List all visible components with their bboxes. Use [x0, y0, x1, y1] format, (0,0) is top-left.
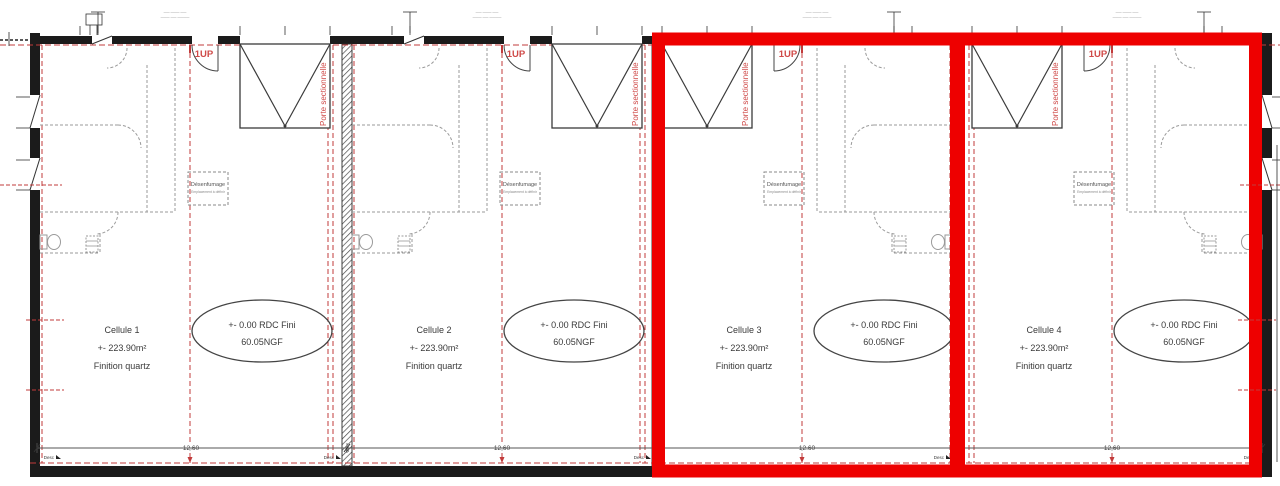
- cell-finish-label: Finition quartz: [716, 361, 773, 371]
- smoke-vent-sublabel: Emplacement à définir: [503, 190, 538, 194]
- illegible-note: —— ——— ——: [164, 10, 187, 14]
- illegible-note: ——— —— ————: [1113, 15, 1142, 19]
- illegible-note: ——— —— ————: [473, 15, 502, 19]
- smoke-vent-sublabel: Emplacement à définir: [1077, 190, 1112, 194]
- cell-name-label: Cellule 3: [726, 325, 761, 335]
- level-label: +- 0.00 RDC Fini: [228, 320, 295, 330]
- sectional-door: [662, 44, 752, 128]
- cell-name-label: Cellule 1: [104, 325, 139, 335]
- level-ngf-label: 60.05NGF: [553, 337, 595, 347]
- cell-area-label: +- 223.90m²: [720, 343, 769, 353]
- level-ngf-label: 60.05NGF: [241, 337, 283, 347]
- stair-label: 1UP: [1089, 49, 1108, 60]
- sectional-door-label: Porte sectionnelle: [319, 62, 328, 126]
- sectional-door: [240, 44, 330, 128]
- sectional-door-label: Porte sectionnelle: [741, 62, 750, 126]
- cell-finish-label: Finition quartz: [1016, 361, 1073, 371]
- drain-label: Desc: [634, 455, 645, 460]
- stair-label: 1UP: [195, 49, 214, 60]
- dimension-label: 12.60: [799, 445, 816, 452]
- smoke-vent-label: Désenfumage: [767, 182, 801, 188]
- door-vertex-dot: [1016, 125, 1019, 128]
- partition-wall: [342, 44, 352, 466]
- stair-label: 1UP: [507, 49, 526, 60]
- dimension-label: 12.60: [1104, 445, 1121, 452]
- floor-plan-svg: DésenfumageEmplacement à définir1UPPorte…: [0, 0, 1280, 486]
- cell-area-label: +- 223.90m²: [1020, 343, 1069, 353]
- level-ngf-label: 60.05NGF: [863, 337, 905, 347]
- dimension-label: 12.60: [183, 445, 200, 452]
- smoke-vent-label: Désenfumage: [503, 182, 537, 188]
- stair-label: 1UP: [779, 49, 798, 60]
- illegible-note: —— ——— ——: [476, 10, 499, 14]
- illegible-note: ——— —— ————: [161, 15, 190, 19]
- door-vertex-dot: [284, 125, 287, 128]
- door-opening: [240, 35, 330, 45]
- level-label: +- 0.00 RDC Fini: [1150, 320, 1217, 330]
- smoke-vent-sublabel: Emplacement à définir: [767, 190, 802, 194]
- cell-finish-label: Finition quartz: [94, 361, 151, 371]
- floor-plan-canvas: DésenfumageEmplacement à définir1UPPorte…: [0, 0, 1280, 486]
- drain-label: Desc: [324, 455, 335, 460]
- smoke-vent-label: Désenfumage: [191, 182, 225, 188]
- drain-label: Desc: [934, 455, 945, 460]
- cell-finish-label: Finition quartz: [406, 361, 463, 371]
- sectional-door-label: Porte sectionnelle: [631, 62, 640, 126]
- door-opening: [504, 35, 530, 45]
- sectional-door: [972, 44, 1062, 128]
- sectional-door-label: Porte sectionnelle: [1051, 62, 1060, 126]
- smoke-vent-sublabel: Emplacement à définir: [191, 190, 226, 194]
- dimension-label: 12.60: [494, 445, 511, 452]
- cell-name-label: Cellule 2: [416, 325, 451, 335]
- level-label: +- 0.00 RDC Fini: [540, 320, 607, 330]
- door-opening: [552, 35, 642, 45]
- sectional-door: [552, 44, 642, 128]
- level-label: +- 0.00 RDC Fini: [850, 320, 917, 330]
- illegible-note: —— ——— ——: [806, 10, 829, 14]
- door-opening: [192, 35, 218, 45]
- illegible-note: ——— —— ————: [803, 15, 832, 19]
- level-ngf-label: 60.05NGF: [1163, 337, 1205, 347]
- cell-area-label: +- 223.90m²: [98, 343, 147, 353]
- illegible-note: —— ——— ——: [1116, 10, 1139, 14]
- door-vertex-dot: [706, 125, 709, 128]
- cell-area-label: +- 223.90m²: [410, 343, 459, 353]
- cell-name-label: Cellule 4: [1026, 325, 1061, 335]
- door-vertex-dot: [596, 125, 599, 128]
- wall-thickness-label: 20: [345, 446, 350, 452]
- smoke-vent-label: Désenfumage: [1077, 182, 1111, 188]
- drain-label: Desc: [44, 455, 55, 460]
